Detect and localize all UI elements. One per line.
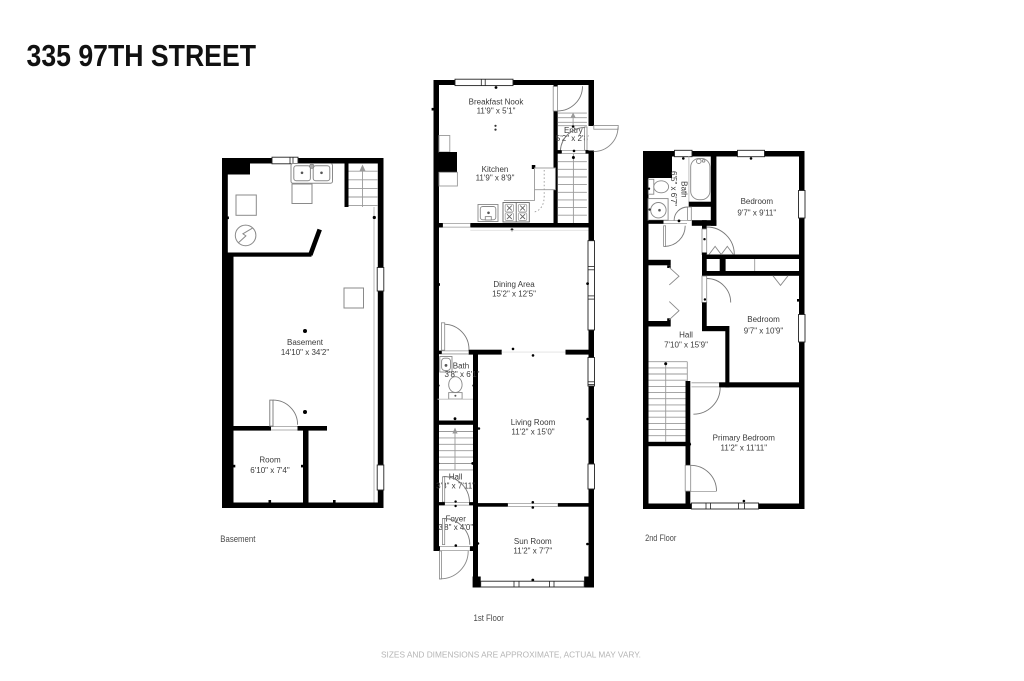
svg-text:Living Room: Living Room (511, 418, 556, 427)
svg-text:Primary Bedroom: Primary Bedroom (713, 434, 776, 443)
svg-text:6'10" x 7'4": 6'10" x 7'4" (250, 466, 290, 475)
svg-text:7'10" x 15'9": 7'10" x 15'9" (664, 340, 708, 349)
svg-text:Room: Room (259, 456, 281, 465)
svg-text:6'5" x 6'7": 6'5" x 6'7" (669, 171, 678, 206)
svg-text:14'10" x 34'2": 14'10" x 34'2" (281, 348, 329, 357)
svg-text:Bedroom: Bedroom (741, 197, 774, 206)
svg-text:2nd Floor: 2nd Floor (645, 533, 676, 543)
svg-text:Basement: Basement (220, 534, 256, 544)
svg-text:Breakfast Nook: Breakfast Nook (469, 98, 525, 107)
svg-text:11'2" x 7'7": 11'2" x 7'7" (513, 546, 552, 555)
svg-text:335 97TH STREET: 335 97TH STREET (27, 38, 257, 73)
svg-text:Bath: Bath (453, 361, 469, 370)
svg-text:9'7" x 9'11": 9'7" x 9'11" (737, 209, 776, 218)
svg-text:1st Floor: 1st Floor (474, 613, 504, 623)
svg-text:Sun Room: Sun Room (514, 537, 552, 546)
svg-text:11'9" x 8'9": 11'9" x 8'9" (476, 174, 515, 183)
svg-text:Basement: Basement (287, 338, 324, 347)
svg-text:Hall: Hall (679, 330, 693, 339)
svg-text:9'7" x 10'9": 9'7" x 10'9" (744, 326, 784, 335)
svg-text:SIZES AND DIMENSIONS ARE APPRO: SIZES AND DIMENSIONS ARE APPROXIMATE, AC… (381, 650, 641, 660)
svg-text:Bath: Bath (680, 181, 689, 197)
svg-text:3'8" x 6'1": 3'8" x 6'1" (445, 370, 480, 379)
svg-text:11'2" x 11'11": 11'2" x 11'11" (721, 444, 768, 453)
svg-text:11'9" x 5'1": 11'9" x 5'1" (477, 107, 516, 116)
svg-text:Bedroom: Bedroom (747, 315, 780, 324)
svg-text:Dining Area: Dining Area (493, 280, 535, 289)
svg-text:15'2" x 12'5": 15'2" x 12'5" (492, 289, 536, 298)
svg-text:11'2" x 15'0": 11'2" x 15'0" (511, 427, 554, 436)
